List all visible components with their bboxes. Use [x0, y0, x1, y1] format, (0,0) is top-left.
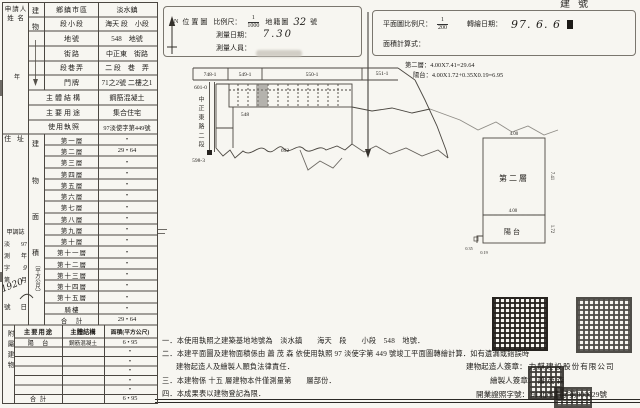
handwriting-stroke — [20, 294, 33, 299]
plan-scale-label: 平面圖比例尺： — [383, 19, 432, 29]
row-value: 548 地號 — [98, 34, 156, 44]
floor-row: 第十四層 • — [46, 280, 156, 291]
annex-row: • — [15, 356, 156, 366]
annex-total-row: 合 計 6 • 95 — [15, 394, 156, 403]
row-value: 97淡使字第449號 — [98, 123, 156, 132]
survey-result-sheet: 建號 申請人 姓 名 年 住 址 甲調誌 淡 97 測 年 字 9 第 月 19… — [0, 0, 640, 408]
scale-label: 比例尺： — [213, 17, 241, 27]
floor-label: 第三層 — [46, 157, 98, 167]
annex-row: • — [15, 385, 156, 394]
map-sheet-suffix: 號 — [310, 17, 317, 27]
floor-label: 合 計 — [46, 315, 98, 325]
building-col-char: 物 — [32, 22, 39, 32]
row-value: 71之2號 二樓之1 — [98, 78, 156, 88]
floor-value: 29 • 64 — [98, 316, 156, 323]
annex-row: • — [15, 366, 156, 375]
surveyor-label: 測量人員： — [216, 44, 251, 52]
cadastral-map-label: 地籍圖 — [265, 17, 289, 27]
floor-label: 第一層 — [46, 135, 98, 145]
location-title: 位置圖 — [182, 17, 209, 27]
floor-label: 第十一層 — [46, 247, 98, 257]
plan-scale-row: 平面圖比例尺： 1 200 轉繪日期： 97. 6. 6 — [383, 17, 573, 31]
floor-value: • — [98, 305, 156, 312]
floor-value: • — [98, 249, 156, 256]
row-label: 段巷弄 — [46, 63, 98, 73]
annex-header: 面積(平方公尺) — [104, 327, 156, 336]
annex-header-row: 主要用途 主體結構 面積(平方公尺) — [15, 325, 156, 338]
south-parcel-label: 692 — [281, 148, 290, 154]
floor-value: • — [98, 170, 156, 177]
floor-row: 第十一層 • — [46, 246, 156, 258]
note-line-2: 二．本建平面圖及建物面積係由 蕭 茂 森 依使用執照 97 淡使字第 449 號… — [162, 349, 529, 359]
area-col-char: 積 — [32, 248, 39, 258]
scan-artifact — [157, 233, 165, 234]
area-col-char: 面 — [32, 212, 39, 222]
floor-value: • — [98, 181, 156, 188]
location-box-line1: N 位置圖 比例尺： 1 1000 地籍圖 32 號 — [174, 15, 317, 29]
info-row: 門牌 71之2號 二樓之1 — [46, 75, 156, 90]
floor-row: 第六層 • — [46, 190, 156, 201]
area-col-char: 建 — [32, 139, 39, 149]
applicant-name-label: 申請人 姓 名 — [3, 5, 29, 23]
floor-row: 第一層 • — [46, 134, 156, 145]
floor-label: 第十三層 — [46, 270, 98, 280]
floor-value: • — [98, 192, 156, 199]
row-label: 門牌 — [46, 78, 98, 88]
floor-value: • — [98, 204, 156, 211]
row-value: 鋼筋混凝土 — [98, 93, 156, 103]
row-label: 段小段 — [46, 19, 98, 29]
floor-label: 第四層 — [46, 169, 98, 179]
floor-row: 第十三層 • — [46, 269, 156, 280]
dimension-label: 1.72 — [549, 225, 554, 234]
floor-value: • — [98, 237, 156, 244]
dimension-label: 0.35 — [465, 246, 472, 251]
receipt-char: 測 — [4, 251, 10, 263]
note-line-1: 一．本使用執照之建築基地地號為 淡水鎮 海天 段 小段 548 地號． — [162, 336, 425, 346]
address-label: 住 址 — [4, 134, 26, 144]
map-sheet-number: 32 — [293, 17, 306, 28]
survey-date-value: 7.30 — [263, 29, 293, 40]
parcel-label: 748-1 — [204, 72, 217, 78]
floor-label: 騎樓 — [46, 304, 98, 314]
floor-value: • — [98, 260, 156, 267]
floor-row: 騎樓 • — [46, 303, 156, 314]
row-value: 淡水鎮 — [98, 5, 156, 15]
note-line-3: 三．本建物係 十五 層建物本件僅測量第 層部份． — [162, 376, 336, 386]
row-label: 主體結構 — [30, 93, 98, 103]
building-col-char: 建 — [32, 6, 39, 16]
annex-header: 主體結構 — [62, 327, 104, 336]
north-label: N — [174, 19, 178, 25]
scan-artifact — [0, 272, 3, 282]
floor-total-row: 合 計 29 • 64 — [46, 314, 156, 325]
down-arrow-icon — [365, 12, 371, 158]
dimension-label: 7.41 — [549, 172, 554, 181]
area-unit-label: （平方公尺） — [33, 262, 41, 320]
scan-artifact — [0, 80, 3, 96]
scale-fraction: 1 1000 — [247, 15, 259, 29]
floor-value: • — [98, 271, 156, 278]
floor-label: 第十四層 — [46, 281, 98, 291]
info-row: 街路 中正東 街路 — [46, 46, 156, 61]
dimension-label: 4.00 — [509, 209, 518, 214]
plan-scale-fraction: 1 200 — [437, 17, 448, 31]
info-row: 段巷弄 二 段 巷 弄 — [46, 61, 156, 75]
applicant-name-line1: 申請人 — [3, 5, 29, 14]
floor-label: 第六層 — [46, 191, 98, 201]
floor-value: • — [98, 282, 156, 289]
redraw-date-value: 97. 6. 6 — [511, 18, 561, 31]
row-label: 使用執照 — [30, 122, 98, 132]
annex-area: • — [104, 367, 156, 374]
dimension-label: 4.00 — [510, 132, 519, 137]
floor-label: 第八層 — [46, 214, 98, 224]
row-value: 集合住宅 — [98, 108, 156, 118]
site-map — [193, 68, 558, 170]
floor-value: • — [98, 159, 156, 166]
receipt-tail-left: 號 — [4, 301, 11, 311]
parcel-label: 551-1 — [376, 71, 389, 77]
floor-plan-drawing — [474, 138, 545, 243]
floor-value: • — [98, 226, 156, 233]
row-value: 二 段 巷 弄 — [98, 63, 156, 73]
row-value: 中正東 街路 — [98, 49, 156, 59]
floor-label: 第十二層 — [46, 259, 98, 269]
survey-date-row: 測量日期： 7.30 — [216, 29, 293, 40]
floor-plan-room-label: 第二層 — [499, 173, 529, 183]
floor-row: 第九層 • — [46, 224, 156, 235]
floor-value: • — [98, 215, 156, 222]
ink-blot — [567, 20, 573, 29]
row-value: 海天 段 小段 — [98, 19, 156, 29]
row-label: 鄉鎮市區 — [46, 5, 98, 15]
annex-header: 主要用途 — [15, 327, 62, 336]
floor-value: • — [98, 136, 156, 143]
info-row: 使用執照 97淡使字第449號 — [30, 120, 156, 134]
formula-label: 面積計算式： — [383, 39, 425, 49]
redraw-date-label: 轉繪日期： — [467, 19, 502, 29]
floor-plan-balcony-label: 陽台 — [504, 227, 522, 236]
info-row: 主體結構 鋼筋混凝土 — [30, 90, 156, 105]
official-seal — [576, 297, 632, 353]
floor-label: 第五層 — [46, 180, 98, 190]
floor-row: 第十層 • — [46, 235, 156, 246]
floor-row: 第十二層 • — [46, 258, 156, 269]
subject-unit-hatch — [256, 84, 268, 107]
location-map-box: N 位置圖 比例尺： 1 1000 地籍圖 32 號 測量日期： 7.30 測量… — [163, 6, 362, 57]
receipt-tail-right: 日 — [21, 301, 28, 311]
annex-row: • — [15, 347, 156, 356]
parcel-label: 550-1 — [306, 72, 319, 78]
parcel-label: 549-1 — [239, 72, 252, 78]
annex-area: 6 • 95 — [104, 339, 156, 346]
page-title-partial: 建號 — [560, 0, 596, 10]
info-row: 段小段 海天 段 小段 — [46, 17, 156, 31]
area-formula-line1: 第二層：4.00X7.41=29.64 — [405, 60, 475, 69]
floor-value: 29 • 64 — [98, 147, 156, 154]
illegible-signature — [256, 50, 302, 57]
floor-plan-info-box: 平面圖比例尺： 1 200 轉繪日期： 97. 6. 6 面積計算式： — [372, 10, 636, 56]
row-label: 街路 — [46, 49, 98, 59]
ditto-arrow-icon — [33, 40, 38, 86]
annex-area: • — [104, 358, 156, 365]
receipt-char: 97 — [21, 239, 27, 251]
floor-label: 第二層 — [46, 146, 98, 156]
site-map-labels: 748-1 549-1 550-1 551-1 601-0 598-3 548 … — [192, 71, 389, 164]
info-row: 地號 548 地號 — [46, 31, 156, 46]
survey-date-label: 測量日期： — [216, 31, 251, 39]
receipt-char: 字 — [4, 263, 10, 275]
info-row: 鄉鎮市區 淡水鎮 — [46, 3, 156, 17]
annex-use: 陽 台 — [15, 338, 62, 347]
area-formula-line2: 陽台：4.00X1.72+0.35X0.19=6.95 — [413, 70, 503, 79]
receipt-header: 甲調誌 — [3, 227, 28, 236]
builder-signature-label: 建物起造人簽章： — [466, 362, 527, 371]
floor-plan-labels: 第二層 陽台 4.00 7.41 4.00 1.72 0.35 0.19 — [465, 132, 554, 255]
floor-row: 第四層 • — [46, 168, 156, 179]
applicant-name-line2: 姓 名 — [3, 14, 29, 23]
row-label: 地號 — [46, 34, 98, 44]
annex-area: 6 • 95 — [104, 395, 156, 402]
row-label: 主要用途 — [30, 108, 98, 118]
receipt-char: 淡 — [4, 239, 10, 251]
floor-value: • — [98, 294, 156, 301]
floor-row: 第五層 • — [46, 179, 156, 190]
road-name-label: 中正東路二段 — [196, 96, 205, 162]
floor-label: 第七層 — [46, 202, 98, 212]
annex-row: • — [15, 375, 156, 385]
floor-row: 第十五層 • — [46, 291, 156, 303]
dimension-label: 0.19 — [480, 250, 487, 255]
annex-row: 陽 台 鋼筋混凝土 6 • 95 — [15, 338, 156, 347]
scan-artifact — [157, 229, 167, 230]
corner-parcel-label: 601-0 — [194, 85, 207, 91]
floor-row: 第二層 29 • 64 — [46, 145, 156, 156]
annex-area: • — [104, 348, 156, 355]
floor-label: 第十層 — [46, 236, 98, 246]
site-parcel-label: 548 — [241, 112, 250, 118]
receipt-tail: 號 日 — [4, 301, 27, 311]
annex-area: • — [104, 377, 156, 384]
annex-use: 合 計 — [15, 394, 62, 403]
surveyor-row: 測量人員： — [216, 43, 251, 53]
annex-side-label: 附屬建物 — [4, 330, 14, 400]
floor-row: 第八層 • — [46, 213, 156, 224]
floor-row: 第三層 • — [46, 156, 156, 168]
area-col-char: 物 — [32, 176, 39, 186]
annex-structure: 鋼筋混凝土 — [62, 339, 104, 347]
note-line-4: 四．本成果表以建物登記為限． — [162, 389, 265, 399]
year-char: 年 — [14, 72, 20, 81]
license-label: 開業證照字號： — [476, 390, 529, 399]
floor-label: 第十五層 — [46, 292, 98, 302]
floor-label: 第九層 — [46, 225, 98, 235]
info-row: 主要用途 集合住宅 — [30, 105, 156, 120]
receipt-char: 年 — [21, 251, 27, 263]
floor-row: 第七層 • — [46, 201, 156, 213]
receipt-char-hand: 9 — [23, 263, 27, 275]
official-seal — [492, 297, 548, 351]
note-line-2b: 建物起造人及繪製人願負法律責任． — [176, 362, 294, 372]
annex-area: • — [104, 386, 156, 393]
license-seal — [554, 387, 592, 408]
